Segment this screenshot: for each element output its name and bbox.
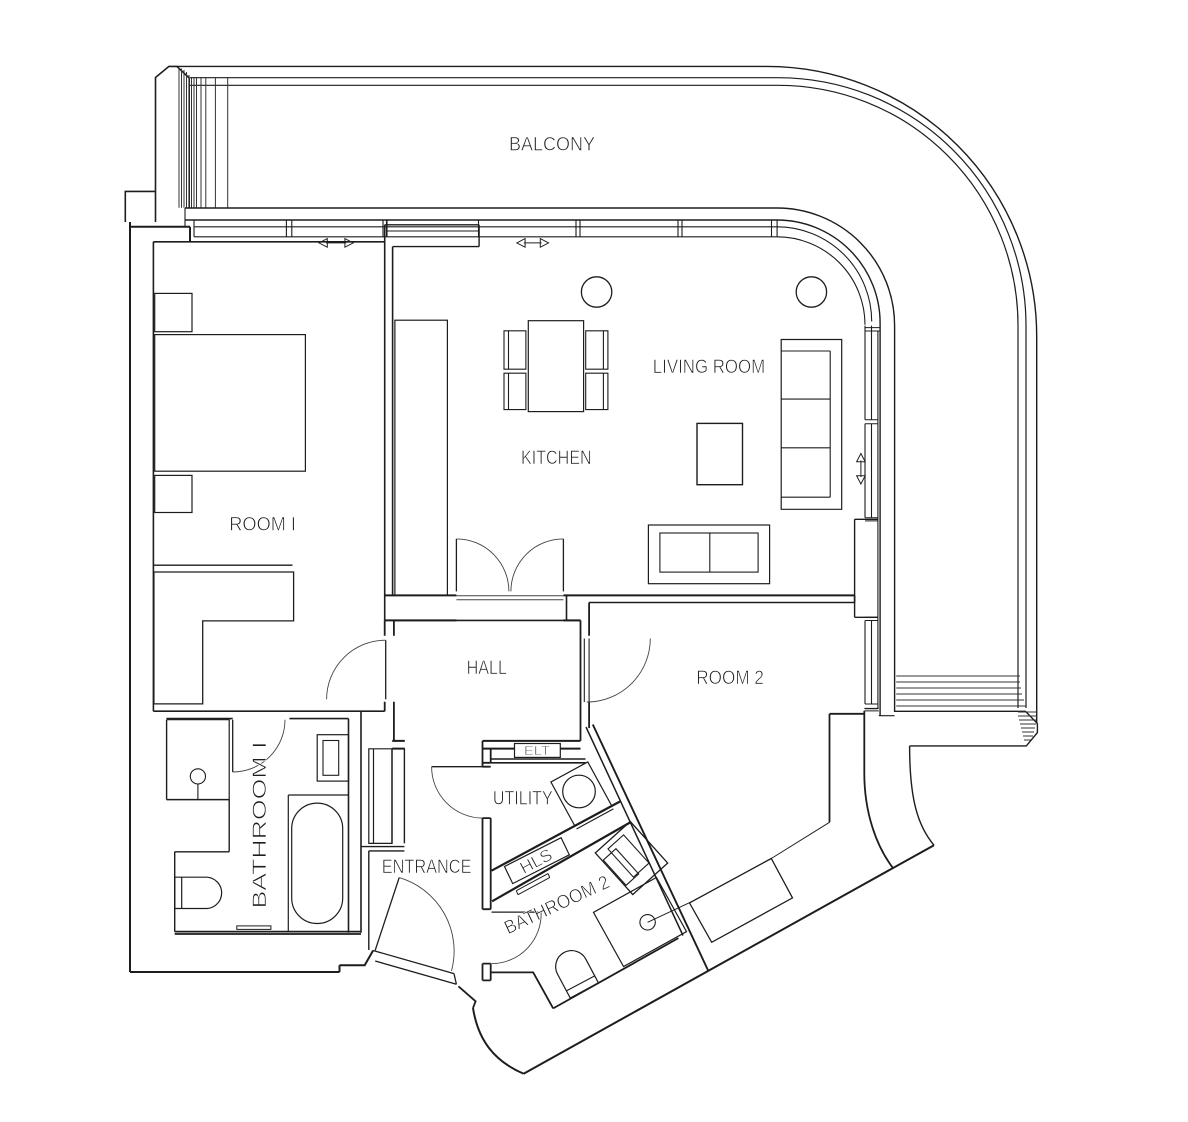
svg-text:BALCONY: BALCONY	[509, 135, 595, 156]
svg-text:ENTRANCE: ENTRANCE	[382, 857, 472, 878]
svg-text:LIVING ROOM: LIVING ROOM	[653, 357, 765, 378]
svg-text:HLS: HLS	[517, 845, 556, 878]
svg-text:HALL: HALL	[467, 658, 507, 679]
svg-text:ROOM 2: ROOM 2	[696, 668, 764, 689]
svg-text:ROOM I: ROOM I	[229, 514, 296, 535]
svg-text:BATHROOM 2: BATHROOM 2	[501, 872, 613, 939]
svg-text:KITCHEN: KITCHEN	[521, 448, 592, 469]
svg-text:UTILITY: UTILITY	[493, 789, 553, 810]
svg-text:BATHROOM I: BATHROOM I	[250, 742, 271, 909]
svg-text:ELT: ELT	[524, 743, 550, 758]
